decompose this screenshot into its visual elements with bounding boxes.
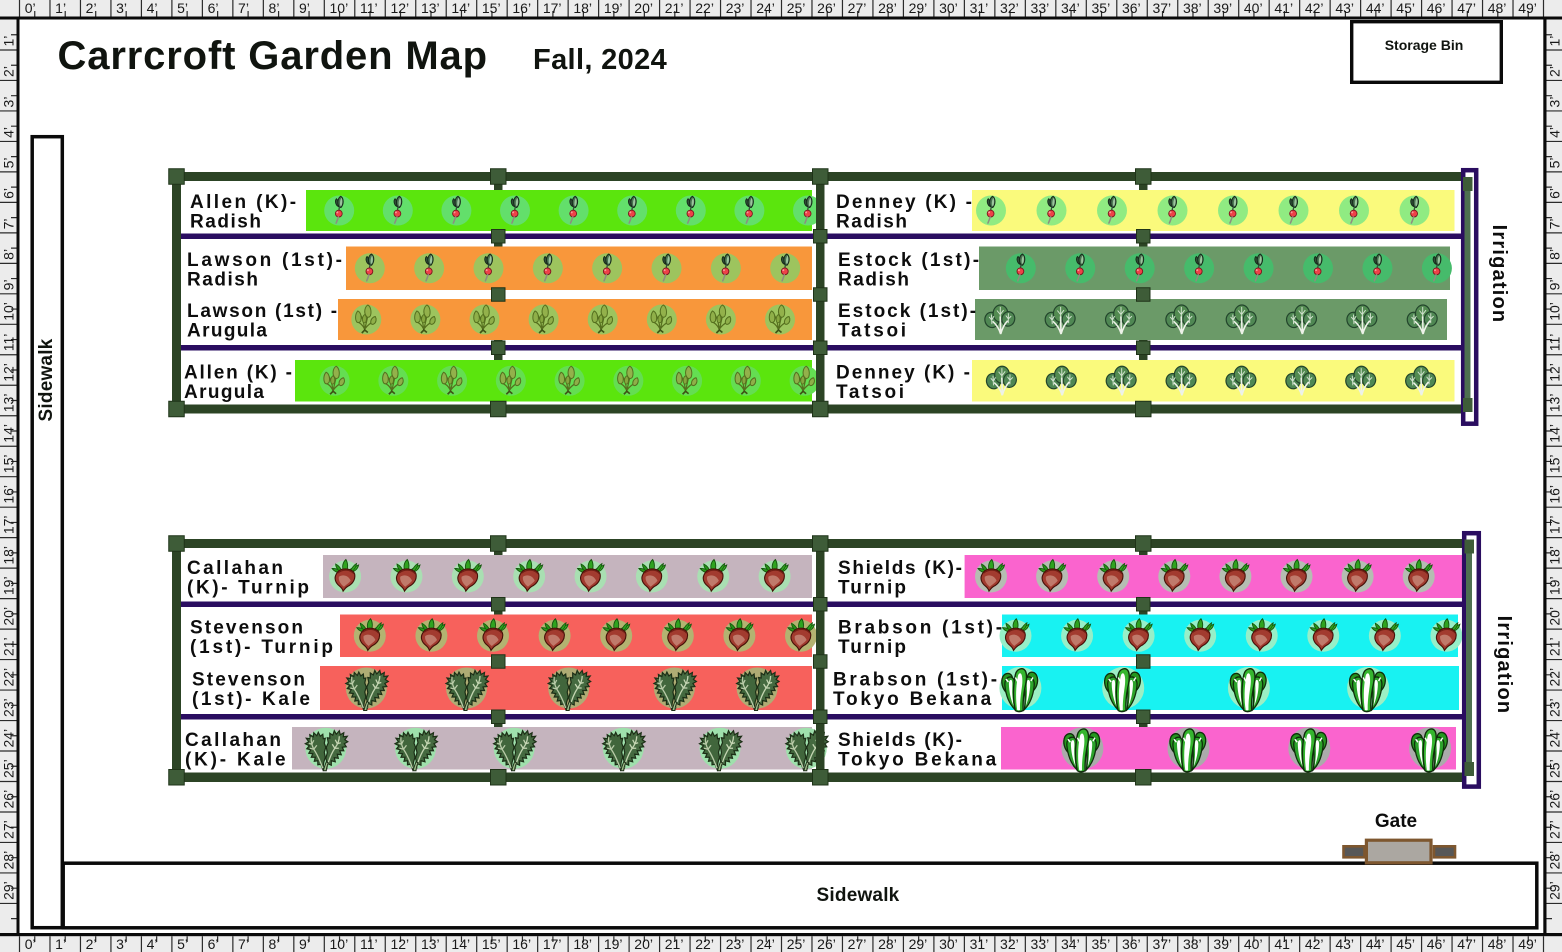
svg-text:21’: 21’: [1, 637, 17, 656]
svg-text:6’: 6’: [1, 188, 17, 199]
svg-text:13’: 13’: [421, 0, 440, 16]
svg-text:12’: 12’: [1, 363, 17, 382]
svg-text:Stevenson: Stevenson: [190, 617, 305, 638]
svg-text:Estock (1st)-: Estock (1st)-: [838, 250, 981, 271]
svg-text:18’: 18’: [573, 0, 592, 16]
svg-text:34’: 34’: [1061, 0, 1080, 16]
svg-text:31’: 31’: [970, 936, 989, 952]
svg-text:35’: 35’: [1092, 936, 1111, 952]
svg-text:45’: 45’: [1396, 0, 1415, 16]
svg-text:49’: 49’: [1518, 936, 1537, 952]
svg-text:17’: 17’: [543, 0, 562, 16]
svg-text:(1st)- Kale: (1st)- Kale: [192, 689, 313, 710]
svg-text:39’: 39’: [1213, 0, 1232, 16]
svg-text:26’: 26’: [817, 0, 836, 16]
svg-text:0’: 0’: [25, 936, 36, 952]
svg-text:20’: 20’: [1, 607, 17, 626]
svg-text:(1st)- Turnip: (1st)- Turnip: [190, 637, 336, 658]
svg-text:47’: 47’: [1457, 0, 1476, 16]
svg-text:11’: 11’: [360, 0, 378, 16]
svg-text:Tokyo Bekana: Tokyo Bekana: [838, 749, 999, 770]
svg-text:33’: 33’: [1031, 0, 1050, 16]
svg-text:6’: 6’: [1547, 188, 1562, 199]
svg-text:31’: 31’: [970, 0, 989, 16]
svg-text:Allen (K) -: Allen (K) -: [184, 362, 294, 383]
svg-text:21’: 21’: [1547, 637, 1562, 656]
svg-text:35’: 35’: [1092, 0, 1111, 16]
svg-text:Brabson (1st)-: Brabson (1st)-: [838, 617, 1005, 638]
svg-text:20’: 20’: [1547, 607, 1562, 626]
svg-text:22’: 22’: [695, 936, 714, 952]
svg-text:33’: 33’: [1031, 936, 1050, 952]
svg-text:5’: 5’: [177, 0, 188, 16]
svg-text:18’: 18’: [1, 546, 17, 565]
svg-text:3’: 3’: [116, 0, 127, 16]
svg-text:4’: 4’: [147, 0, 158, 16]
svg-text:32’: 32’: [1000, 0, 1019, 16]
svg-text:25’: 25’: [1547, 759, 1562, 778]
svg-text:16’: 16’: [1, 485, 17, 504]
svg-text:2’: 2’: [1547, 66, 1562, 77]
svg-text:49’: 49’: [1518, 0, 1537, 16]
svg-text:(K)- Kale: (K)- Kale: [185, 749, 288, 770]
svg-text:27’: 27’: [1547, 820, 1562, 839]
svg-text:Carrcroft Garden Map: Carrcroft Garden Map: [58, 34, 488, 78]
svg-text:32’: 32’: [1000, 936, 1019, 952]
svg-text:28’: 28’: [1547, 851, 1562, 870]
svg-text:14’: 14’: [1, 424, 17, 443]
svg-text:2’: 2’: [1, 66, 17, 77]
svg-text:7’: 7’: [1, 218, 17, 229]
svg-text:25’: 25’: [787, 0, 806, 16]
svg-text:45’: 45’: [1396, 936, 1415, 952]
svg-text:34’: 34’: [1061, 936, 1080, 952]
svg-text:13’: 13’: [1547, 394, 1562, 413]
svg-text:27’: 27’: [848, 936, 867, 952]
svg-text:1’: 1’: [55, 936, 66, 952]
svg-text:48’: 48’: [1488, 936, 1507, 952]
svg-text:18’: 18’: [1547, 546, 1562, 565]
svg-text:15’: 15’: [482, 936, 501, 952]
svg-text:46’: 46’: [1427, 0, 1446, 16]
svg-text:24’: 24’: [756, 936, 775, 952]
svg-text:Arugula: Arugula: [187, 321, 268, 342]
svg-text:5’: 5’: [1, 157, 17, 168]
svg-text:Denney (K) -: Denney (K) -: [836, 362, 972, 383]
svg-text:Tokyo Bekana: Tokyo Bekana: [833, 689, 994, 710]
svg-text:47’: 47’: [1457, 936, 1476, 952]
svg-text:Sidewalk: Sidewalk: [36, 338, 57, 421]
svg-text:13’: 13’: [421, 936, 440, 952]
svg-text:Radish: Radish: [187, 269, 259, 290]
svg-text:1’: 1’: [55, 0, 66, 16]
svg-text:17’: 17’: [1, 515, 17, 534]
svg-text:Callahan: Callahan: [185, 730, 283, 751]
svg-text:Shields (K)-: Shields (K)-: [838, 730, 964, 751]
svg-text:15’: 15’: [1, 455, 17, 474]
svg-text:43’: 43’: [1335, 0, 1354, 16]
svg-text:14’: 14’: [1547, 424, 1562, 443]
svg-text:10’: 10’: [330, 0, 349, 16]
svg-text:8’: 8’: [1547, 249, 1562, 260]
svg-text:Brabson (1st)-: Brabson (1st)-: [833, 670, 1000, 691]
svg-text:Denney (K) -: Denney (K) -: [836, 192, 974, 213]
svg-text:13’: 13’: [1, 394, 17, 413]
svg-text:Allen (K)-: Allen (K)-: [190, 192, 298, 213]
svg-text:43’: 43’: [1335, 936, 1354, 952]
svg-text:Fall, 2024: Fall, 2024: [533, 44, 667, 76]
svg-text:24’: 24’: [1547, 729, 1562, 748]
svg-text:20’: 20’: [634, 936, 653, 952]
svg-text:22’: 22’: [1547, 668, 1562, 687]
svg-text:27’: 27’: [848, 0, 867, 16]
svg-text:44’: 44’: [1366, 936, 1385, 952]
svg-text:Tatsoi: Tatsoi: [836, 382, 907, 403]
svg-text:Storage Bin: Storage Bin: [1385, 37, 1464, 53]
svg-text:30’: 30’: [939, 936, 958, 952]
svg-text:30’: 30’: [939, 0, 958, 16]
svg-text:4’: 4’: [1, 127, 17, 138]
svg-text:Turnip: Turnip: [838, 578, 908, 599]
svg-text:18’: 18’: [573, 936, 592, 952]
svg-text:Radish: Radish: [190, 212, 262, 233]
svg-text:15’: 15’: [1547, 455, 1562, 474]
svg-text:10’: 10’: [330, 936, 349, 952]
svg-text:38’: 38’: [1183, 0, 1202, 16]
svg-text:Shields (K)-: Shields (K)-: [838, 558, 964, 579]
svg-text:2’: 2’: [86, 936, 97, 952]
svg-text:11’: 11’: [1547, 334, 1562, 352]
svg-text:15’: 15’: [482, 0, 501, 16]
svg-text:9’: 9’: [299, 0, 310, 16]
svg-text:21’: 21’: [665, 936, 684, 952]
svg-text:Tatsoi: Tatsoi: [838, 321, 909, 342]
svg-text:29’: 29’: [1, 881, 17, 900]
svg-text:2’: 2’: [86, 0, 97, 16]
svg-text:10’: 10’: [1547, 302, 1562, 321]
svg-text:39’: 39’: [1213, 936, 1232, 952]
svg-text:41’: 41’: [1274, 0, 1293, 16]
svg-text:23’: 23’: [1, 698, 17, 717]
svg-text:25’: 25’: [1, 759, 17, 778]
svg-text:46’: 46’: [1427, 936, 1446, 952]
svg-text:7’: 7’: [1547, 218, 1562, 229]
svg-text:17’: 17’: [543, 936, 562, 952]
svg-text:28’: 28’: [1, 851, 17, 870]
svg-text:Irrigation: Irrigation: [1493, 616, 1515, 715]
svg-text:26’: 26’: [817, 936, 836, 952]
svg-text:19’: 19’: [1547, 576, 1562, 595]
svg-text:16’: 16’: [512, 0, 531, 16]
svg-text:7’: 7’: [238, 936, 249, 952]
svg-text:Lawson (1st) -: Lawson (1st) -: [187, 301, 339, 322]
svg-text:7’: 7’: [238, 0, 249, 16]
svg-text:9’: 9’: [299, 936, 310, 952]
svg-text:26’: 26’: [1, 790, 17, 809]
svg-text:12’: 12’: [1547, 363, 1562, 382]
svg-text:5’: 5’: [1547, 157, 1562, 168]
svg-text:3’: 3’: [1, 97, 17, 108]
svg-text:12’: 12’: [390, 0, 409, 16]
svg-text:11’: 11’: [1, 334, 17, 352]
svg-text:42’: 42’: [1305, 0, 1324, 16]
svg-text:28’: 28’: [878, 936, 897, 952]
svg-text:37’: 37’: [1152, 936, 1171, 952]
svg-text:19’: 19’: [604, 936, 623, 952]
svg-text:29’: 29’: [1547, 881, 1562, 900]
svg-text:Radish: Radish: [838, 269, 910, 290]
svg-text:Lawson (1st)-: Lawson (1st)-: [187, 250, 345, 271]
svg-text:5’: 5’: [177, 936, 188, 952]
svg-text:36’: 36’: [1122, 0, 1141, 16]
svg-text:3’: 3’: [1547, 97, 1562, 108]
svg-text:19’: 19’: [1, 576, 17, 595]
svg-text:37’: 37’: [1152, 0, 1171, 16]
svg-text:8’: 8’: [269, 0, 280, 16]
svg-text:26’: 26’: [1547, 790, 1562, 809]
svg-text:17’: 17’: [1547, 515, 1562, 534]
svg-text:0’: 0’: [25, 0, 36, 16]
svg-text:Turnip: Turnip: [838, 637, 908, 658]
svg-text:3’: 3’: [116, 936, 127, 952]
svg-text:Callahan: Callahan: [187, 558, 285, 579]
svg-text:6’: 6’: [208, 936, 219, 952]
svg-text:Sidewalk: Sidewalk: [817, 885, 900, 906]
svg-text:40’: 40’: [1244, 936, 1263, 952]
svg-text:16’: 16’: [1547, 485, 1562, 504]
svg-text:23’: 23’: [1547, 698, 1562, 717]
svg-text:16’: 16’: [512, 936, 531, 952]
svg-text:22’: 22’: [1, 668, 17, 687]
svg-text:24’: 24’: [756, 0, 775, 16]
svg-text:23’: 23’: [726, 936, 745, 952]
svg-text:24’: 24’: [1, 729, 17, 748]
svg-text:Estock (1st)-: Estock (1st)-: [838, 301, 978, 322]
svg-text:14’: 14’: [451, 936, 470, 952]
svg-text:4’: 4’: [1547, 127, 1562, 138]
svg-text:Gate: Gate: [1375, 811, 1417, 832]
svg-text:21’: 21’: [665, 0, 684, 16]
svg-text:28’: 28’: [878, 0, 897, 16]
svg-text:11’: 11’: [360, 936, 378, 952]
svg-text:48’: 48’: [1488, 0, 1507, 16]
svg-text:12’: 12’: [390, 936, 409, 952]
svg-text:41’: 41’: [1274, 936, 1293, 952]
svg-text:9’: 9’: [1547, 279, 1562, 290]
svg-text:44’: 44’: [1366, 0, 1385, 16]
svg-text:(K)- Turnip: (K)- Turnip: [187, 578, 312, 599]
svg-text:19’: 19’: [604, 0, 623, 16]
svg-text:Irrigation: Irrigation: [1488, 225, 1510, 324]
svg-text:1’: 1’: [1547, 36, 1562, 47]
svg-text:42’: 42’: [1305, 936, 1324, 952]
svg-text:40’: 40’: [1244, 0, 1263, 16]
svg-text:4’: 4’: [147, 936, 158, 952]
svg-text:29’: 29’: [909, 936, 928, 952]
svg-text:Arugula: Arugula: [184, 382, 265, 403]
svg-text:10’: 10’: [1, 302, 17, 321]
svg-text:9’: 9’: [1, 279, 17, 290]
svg-text:8’: 8’: [269, 936, 280, 952]
svg-text:23’: 23’: [726, 0, 745, 16]
svg-text:29’: 29’: [909, 0, 928, 16]
svg-text:22’: 22’: [695, 0, 714, 16]
svg-text:1’: 1’: [1, 36, 17, 47]
svg-text:25’: 25’: [787, 936, 806, 952]
svg-text:8’: 8’: [1, 249, 17, 260]
svg-text:27’: 27’: [1, 820, 17, 839]
svg-text:20’: 20’: [634, 0, 653, 16]
svg-text:Stevenson: Stevenson: [192, 670, 307, 691]
svg-text:Radish: Radish: [836, 212, 908, 233]
svg-text:6’: 6’: [208, 0, 219, 16]
svg-text:38’: 38’: [1183, 936, 1202, 952]
svg-text:36’: 36’: [1122, 936, 1141, 952]
svg-text:14’: 14’: [451, 0, 470, 16]
